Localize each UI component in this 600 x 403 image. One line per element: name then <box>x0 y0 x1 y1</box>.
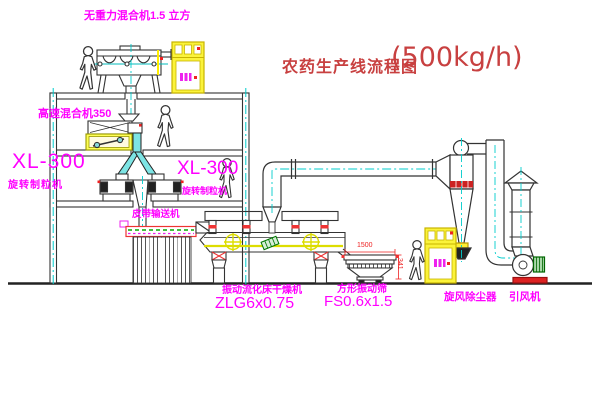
dimension-sieve-width: 1500 <box>357 242 373 249</box>
worker-top-floor <box>80 47 96 90</box>
dryer-motor <box>261 236 279 249</box>
fan-inlet-duct <box>467 140 519 265</box>
label-granulator-left-name: 旋转制粒机 <box>8 181 63 191</box>
label-dryer-model: ZLG6x0.75 <box>215 296 294 312</box>
control-cabinet-upper <box>172 42 204 93</box>
dimension-sieve-side: 341 <box>396 258 403 270</box>
dryer-spring-feet <box>212 252 328 283</box>
conveyor-support-columns <box>133 237 191 283</box>
cabinet-text-marks <box>434 259 446 267</box>
label-sieve-model: FS0.6x1.5 <box>324 294 392 309</box>
granulator-left <box>98 174 134 201</box>
label-dust-collector: 旋风除尘器 <box>444 292 497 303</box>
worker-ground <box>410 241 425 280</box>
label-gravity-mixer: 无重力混合机1.5 立方 <box>84 11 190 22</box>
flow-diagram: 农药生产线流程图 (500kg/h) 无重力混合机1.5 立方 高速混合机350… <box>0 0 600 403</box>
cabinet-text-marks <box>180 73 192 81</box>
worker-mid-floor <box>158 106 173 147</box>
label-granulator-right-model: XL-300 <box>177 159 238 178</box>
control-cabinet-lower <box>425 228 456 283</box>
induced-draft-fan <box>513 255 548 284</box>
label-induced-fan: 引风机 <box>509 292 541 303</box>
zero-gravity-mixer <box>92 46 171 93</box>
label-belt-conveyor: 皮带输送机 <box>132 210 180 220</box>
belt-conveyor <box>120 221 196 237</box>
dryer-exhaust-duct <box>263 159 448 233</box>
square-vibrating-sieve <box>342 255 399 283</box>
label-granulator-left-model: XL-300 <box>12 151 86 172</box>
label-high-speed-mixer: 高速混合机350 <box>38 109 111 120</box>
label-granulator-right-name: 旋转制粒机 <box>182 187 227 196</box>
page-title-capacity: (500kg/h) <box>391 42 523 73</box>
granulator-discharge-funnel <box>133 176 148 228</box>
